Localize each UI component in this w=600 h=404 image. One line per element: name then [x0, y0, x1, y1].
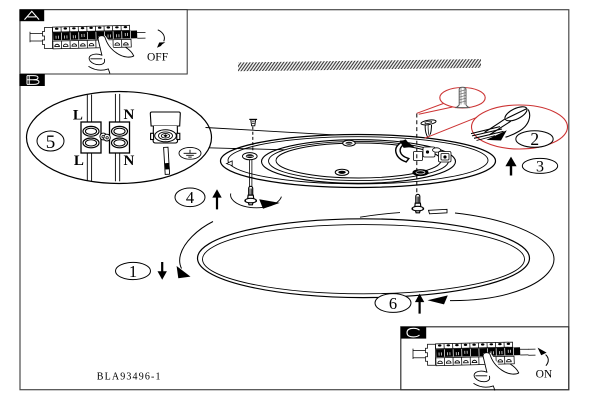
svg-text:ON: ON: [536, 368, 553, 380]
svg-text:5: 5: [46, 132, 56, 153]
svg-text:3: 3: [536, 159, 544, 176]
svg-text:N: N: [124, 107, 135, 123]
svg-text:2: 2: [530, 129, 539, 149]
svg-text:N: N: [124, 153, 135, 169]
svg-text:6: 6: [389, 294, 397, 313]
svg-text:L: L: [73, 107, 83, 123]
svg-text:L: L: [74, 153, 84, 169]
svg-text:4: 4: [186, 188, 194, 207]
svg-text:1: 1: [129, 262, 137, 281]
svg-text:OFF: OFF: [147, 52, 168, 64]
svg-text:BLA93496-1: BLA93496-1: [97, 371, 162, 382]
